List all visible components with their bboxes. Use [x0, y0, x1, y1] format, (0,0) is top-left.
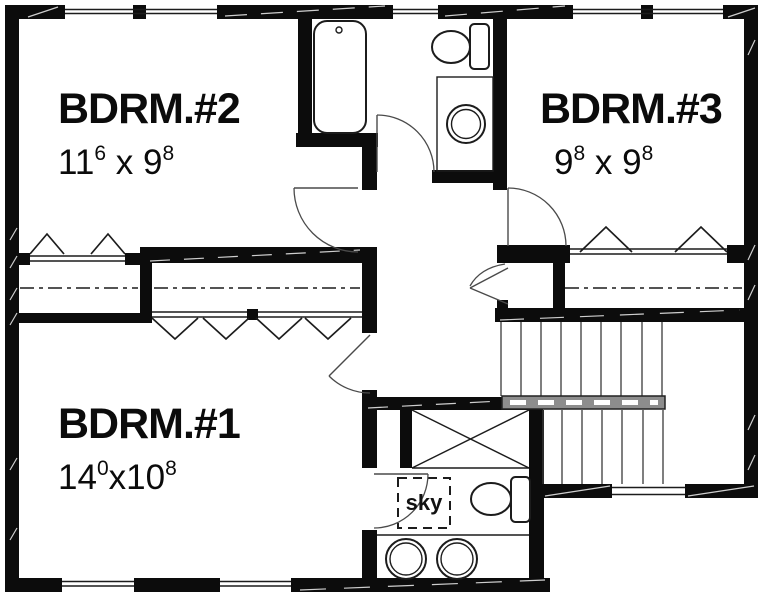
bdrm1-closet — [152, 288, 362, 339]
room-name: BDRM.#1 — [58, 403, 240, 446]
room-dimensions: 140x108 — [58, 460, 240, 495]
wall-bdrm2-closet-stub-east — [125, 253, 141, 265]
room-dimensions: 98 x 98 — [540, 145, 722, 180]
window-bdrm1-bottom-left — [62, 582, 134, 587]
bathtub — [314, 21, 366, 133]
bdrm2-closet — [20, 234, 138, 288]
toilet — [471, 477, 530, 522]
wall-tubroom-south — [296, 133, 378, 147]
wall-bdrm2-closet-south — [19, 313, 152, 323]
wall-bdrm1-east-upper — [362, 247, 377, 333]
stair-treads-lower — [543, 410, 663, 484]
toilet — [432, 24, 489, 69]
room-name: BDRM.#2 — [58, 88, 240, 131]
wall-bottom-left — [5, 578, 62, 592]
wall-bdrm3-closet-stub-west — [497, 245, 570, 263]
wall-hall-closet-east — [553, 263, 565, 310]
bifold-door-chevron — [152, 318, 198, 339]
double-vanity-sinks — [377, 535, 529, 579]
wall-top-mid — [217, 5, 393, 19]
wall-bath-bdrm3-divider — [493, 19, 507, 190]
stairwell-opening-rail — [612, 488, 685, 495]
wall-bdrm1-east-lower — [362, 530, 377, 578]
window-mullion — [641, 5, 653, 19]
bathroom-door-swing — [377, 115, 434, 172]
bifold-door-chevron — [203, 318, 249, 339]
wall-left — [5, 5, 19, 592]
wall-bdrm3-closet-stub-east — [727, 245, 747, 263]
bathroom-top — [314, 21, 493, 172]
wall-tubroom-west — [298, 19, 312, 137]
wall-bottom-right — [291, 578, 550, 592]
wall-bdrm2-closet-stub-west — [19, 253, 30, 265]
wall-toiletroom-south — [432, 170, 493, 183]
stair-treads-upper — [501, 322, 662, 396]
linen-closet-x — [412, 410, 529, 468]
staircase — [501, 322, 665, 484]
bifold-door-chevron — [30, 234, 64, 254]
wall-closet-divider — [140, 253, 152, 323]
bifold-door-chevron — [91, 234, 125, 254]
wall-bath2-east — [529, 410, 544, 592]
wall-closets-north — [140, 247, 365, 263]
skylight-label: sky — [398, 478, 450, 528]
hall-closet-door — [470, 264, 508, 304]
bdrm3-closet — [565, 227, 742, 288]
room-bdrm2-label: BDRM.#2 116 x 98 — [58, 88, 240, 180]
bdrm1-door-swing — [329, 335, 370, 393]
window-bath-top — [393, 10, 438, 14]
bifold-door-chevron — [256, 318, 302, 339]
wall-bath2-closet-west — [400, 410, 412, 468]
room-dimensions: 116 x 98 — [58, 145, 240, 180]
bdrm2-door-swing — [294, 188, 358, 252]
bifold-door-chevron — [305, 318, 351, 339]
bifold-door-chevron — [675, 227, 727, 252]
room-bdrm3-label: BDRM.#3 98 x 98 — [540, 88, 722, 180]
wall-bath-door-stub — [362, 147, 377, 190]
stair-handrail — [502, 396, 665, 409]
bdrm3-door-swing — [508, 188, 566, 246]
window-mullion — [133, 5, 146, 19]
room-bdrm1-label: BDRM.#1 140x108 — [58, 403, 240, 495]
floor-plan: BDRM.#2 116 x 98 BDRM.#3 98 x 98 BDRM.#1… — [0, 0, 760, 600]
doors — [294, 188, 566, 393]
window-bdrm1-bottom-right — [220, 582, 291, 587]
room-name: BDRM.#3 — [540, 88, 722, 131]
wall-bottom-mid — [134, 578, 220, 592]
vanity-sink — [437, 77, 493, 171]
bifold-door-chevron — [580, 227, 632, 252]
